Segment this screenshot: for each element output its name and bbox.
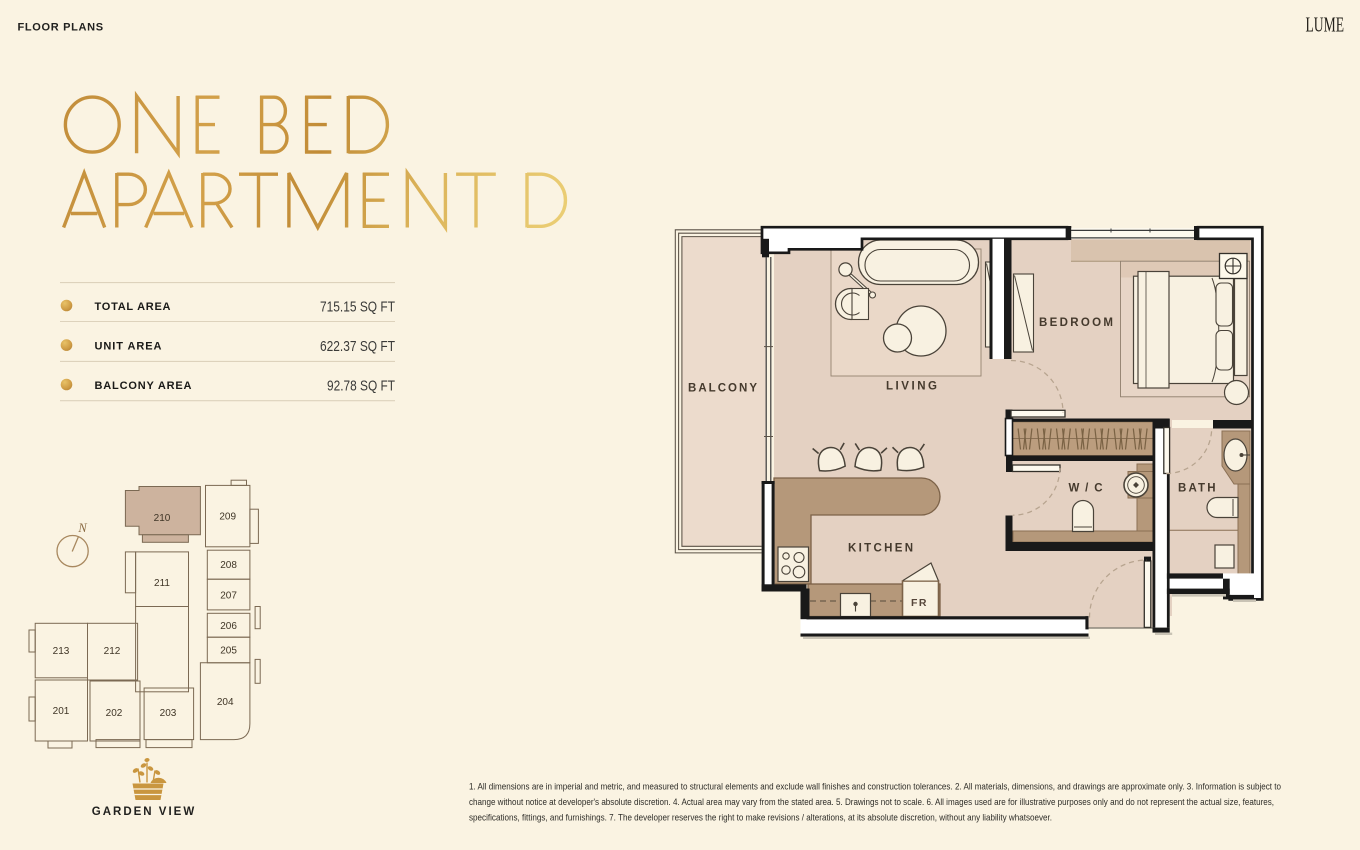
svg-text:change without notice at devel: change without notice at developer's abs… xyxy=(469,797,1274,807)
svg-text:715.15 SQ FT: 715.15 SQ FT xyxy=(320,298,395,315)
svg-text:GARDEN VIEW: GARDEN VIEW xyxy=(92,806,196,818)
svg-text:N: N xyxy=(77,521,87,535)
svg-text:202: 202 xyxy=(106,708,123,719)
svg-text:BALCONY: BALCONY xyxy=(688,383,757,395)
svg-text:203: 203 xyxy=(160,708,177,719)
svg-text:92.78 SQ FT: 92.78 SQ FT xyxy=(327,377,395,394)
svg-text:207: 207 xyxy=(220,591,237,602)
svg-text:210: 210 xyxy=(154,513,171,524)
svg-text:211: 211 xyxy=(154,578,170,589)
svg-text:UNIT AREA: UNIT AREA xyxy=(95,340,162,352)
svg-text:W/C: W/C xyxy=(1069,483,1103,495)
svg-text:204: 204 xyxy=(217,697,234,708)
svg-text:LUME: LUME xyxy=(1306,13,1345,37)
svg-text:TOTAL AREA: TOTAL AREA xyxy=(95,301,171,313)
svg-text:206: 206 xyxy=(220,621,237,632)
svg-text:213: 213 xyxy=(53,646,70,657)
svg-text:208: 208 xyxy=(220,560,237,571)
svg-text:209: 209 xyxy=(219,512,236,523)
svg-text:212: 212 xyxy=(104,646,121,657)
svg-text:622.37 SQ FT: 622.37 SQ FT xyxy=(320,338,395,355)
svg-text:FR: FR xyxy=(911,597,928,609)
svg-text:FLOOR PLANS: FLOOR PLANS xyxy=(18,22,106,34)
svg-text:201: 201 xyxy=(53,706,70,717)
svg-text:BALCONY AREA: BALCONY AREA xyxy=(95,380,192,392)
svg-text:205: 205 xyxy=(220,646,237,657)
svg-text:1. All dimensions are in imper: 1. All dimensions are in imperial and me… xyxy=(469,782,1281,792)
svg-text:specifications, fittings, and: specifications, fittings, and furnishing… xyxy=(469,813,1052,823)
